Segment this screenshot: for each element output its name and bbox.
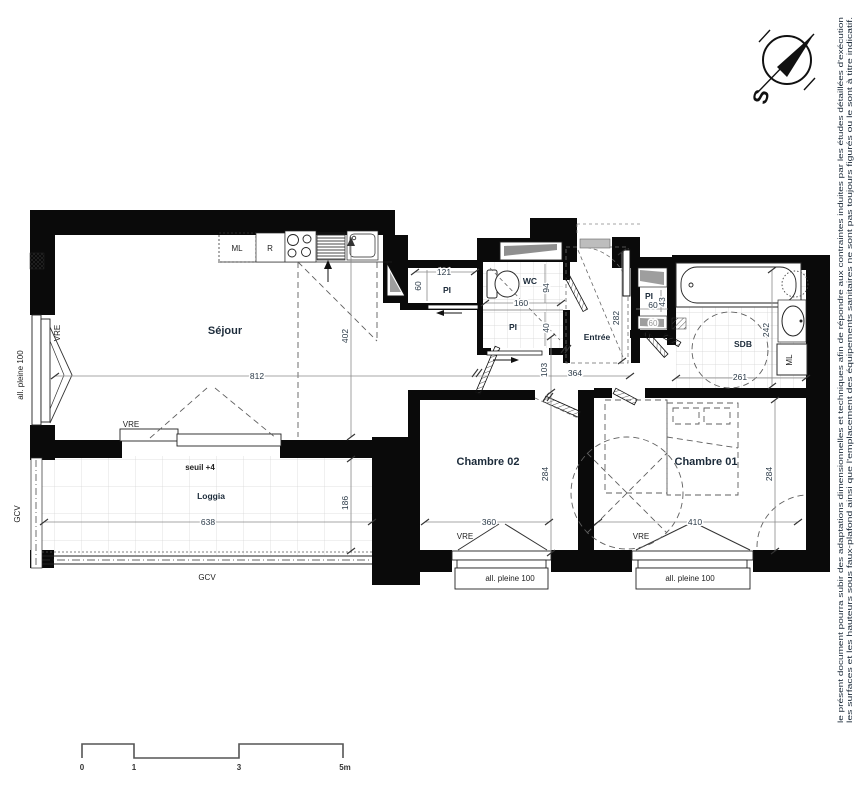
dim-pi1-w: 121 [437, 267, 451, 277]
disclaimer-line2: les surfaces et les hauteurs sous faux-p… [845, 17, 854, 723]
sejour-left-window [32, 315, 72, 425]
scale-3: 3 [237, 763, 242, 772]
entry-door-leaf [623, 248, 630, 297]
label-ml-sdb: ML [785, 354, 794, 366]
dim-loggia-w: 638 [201, 517, 215, 527]
label-gcv-left: GCV [13, 505, 22, 523]
label-allege-ch01: all. pleine 100 [665, 574, 715, 583]
label-ml-kitchen: ML [231, 244, 243, 253]
dim-wc-d: 94 [541, 283, 551, 293]
room-label-wc: WC [523, 276, 537, 286]
entry-sill [580, 239, 610, 248]
floor-plan-page: Séjour WC Entrée SDB Chambre 02 Chambre … [0, 0, 860, 800]
scale-5m: 5m [339, 763, 351, 772]
drainer [317, 233, 345, 260]
room-label-loggia: Loggia [197, 491, 225, 501]
cooktop [285, 231, 316, 262]
sdb-threshold-hatch [672, 318, 686, 329]
dim-entree-l: 282 [611, 311, 621, 325]
label-vre-ch02: VRE [457, 532, 473, 541]
kitchen [218, 231, 392, 437]
label-seuil: seuil +4 [185, 463, 215, 472]
dim-sejour-w: 812 [250, 371, 264, 381]
compass-south-label: S [749, 87, 775, 106]
room-label-chambre02: Chambre 02 [457, 456, 520, 468]
label-vre-left: VRE [53, 325, 62, 341]
dim-pi2-d: 40 [541, 323, 551, 333]
dim-ch01-l: 284 [764, 467, 774, 481]
dim-hall-w: 364 [568, 368, 582, 378]
toilet-bowl [495, 271, 519, 297]
dim-pi1-d: 60 [413, 281, 423, 291]
dim-loggia-d: 186 [340, 496, 350, 510]
wc-window [500, 242, 562, 260]
label-allege-left: all. pleine 100 [16, 350, 25, 400]
compass: S [749, 30, 815, 107]
floor-plan-drawing: Séjour WC Entrée SDB Chambre 02 Chambre … [0, 0, 860, 800]
scale-bar: 0 1 3 5m [80, 744, 351, 772]
label-pi2: PI [509, 322, 517, 332]
expansion-joint-hatch [30, 253, 44, 269]
dim-ch02-l: 284 [540, 467, 550, 481]
label-fridge: R [267, 244, 273, 253]
scale-0: 0 [80, 763, 85, 772]
worktop-dashed [298, 262, 377, 437]
disclaimer: le présent document pourra subir des ada… [836, 17, 854, 723]
washbasin [778, 300, 806, 342]
dim-sdb-l: 242 [761, 323, 771, 337]
dim-pi3-d: 43 [657, 297, 667, 307]
dim-sejour-h: 402 [340, 329, 350, 343]
loggia-door [120, 388, 281, 446]
label-allege-ch02: all. pleine 100 [485, 574, 535, 583]
room-label-sdb: SDB [734, 339, 752, 349]
wc-door [565, 276, 587, 312]
room-label-entree: Entrée [584, 332, 611, 342]
room-label-chambre01: Chambre 01 [675, 456, 738, 468]
label-vre-ch01: VRE [633, 532, 649, 541]
dim-hall-d: 103 [539, 363, 549, 377]
label-vre-sejour: VRE [123, 420, 139, 429]
dim-pi3-w2: 60 [649, 319, 658, 328]
dim-wc-w: 160 [514, 298, 528, 308]
room-label-sejour: Séjour [208, 325, 243, 337]
kitchen-arrow [324, 260, 332, 282]
dim-ch02-w: 360 [482, 517, 496, 527]
label-pi1: PI [443, 285, 451, 295]
dim-sdb-w: 261 [733, 372, 747, 382]
label-gcv-bottom: GCV [198, 573, 216, 582]
disclaimer-line1: le présent document pourra subir des ada… [836, 17, 845, 723]
dim-ch01-w: 410 [688, 517, 702, 527]
chambre01-door [613, 388, 637, 405]
scale-1: 1 [132, 763, 137, 772]
